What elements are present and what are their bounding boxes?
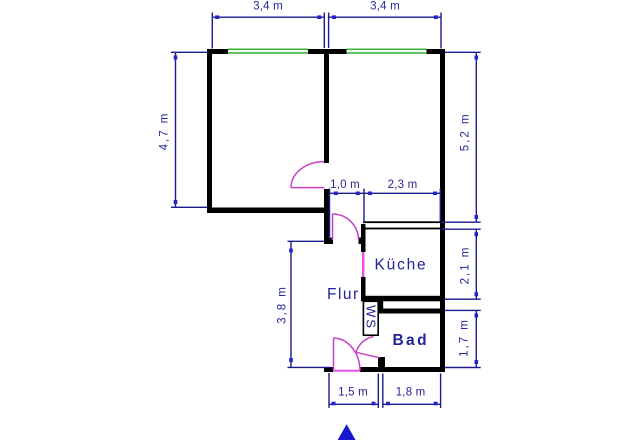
svg-text:1,8 m: 1,8 m (396, 387, 426, 399)
svg-text:1,0 m: 1,0 m (330, 179, 360, 191)
svg-text:1,5 m: 1,5 m (338, 387, 368, 399)
svg-text:3,4 m: 3,4 m (370, 1, 400, 13)
svg-text:WS: WS (364, 305, 379, 330)
svg-text:4,7 m: 4,7 m (159, 112, 171, 151)
svg-text:Küche: Küche (375, 257, 428, 274)
svg-text:2,3 m: 2,3 m (388, 179, 418, 191)
svg-text:3,4 m: 3,4 m (253, 1, 283, 13)
svg-text:1,7 m: 1,7 m (459, 318, 471, 357)
svg-text:Bad: Bad (392, 332, 428, 349)
svg-text:5,2 m: 5,2 m (460, 112, 472, 151)
svg-text:3,8 m: 3,8 m (276, 285, 288, 324)
svg-text:2,1 m: 2,1 m (460, 246, 472, 285)
svg-text:Flur: Flur (327, 286, 360, 303)
